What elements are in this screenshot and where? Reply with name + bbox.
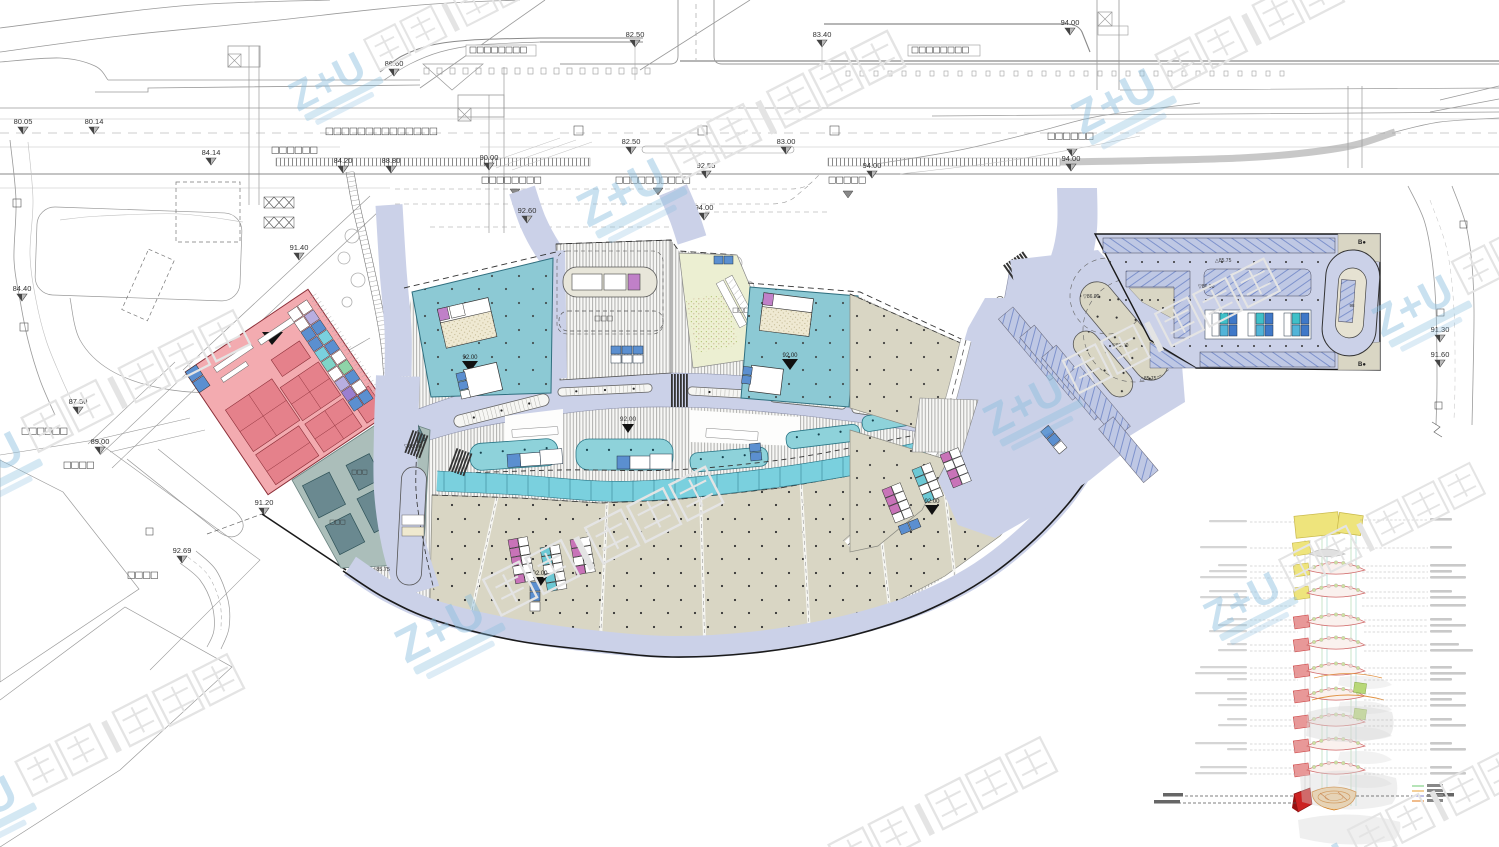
svg-text:92.00: 92.00	[924, 499, 940, 505]
svg-text:88.80: 88.80	[382, 156, 401, 165]
svg-text:92.00: 92.00	[462, 355, 478, 361]
svg-text:△85.75: △85.75	[1140, 376, 1157, 382]
svg-text:84.40: 84.40	[13, 284, 32, 293]
svg-text:△85.75: △85.75	[1215, 258, 1232, 264]
svg-text:B●: B●	[1358, 240, 1366, 246]
svg-text:84.20: 84.20	[334, 156, 353, 165]
svg-text:84.14: 84.14	[202, 148, 221, 157]
svg-text:92.00: 92.00	[782, 353, 798, 359]
svg-text:80.14: 80.14	[85, 117, 104, 126]
svg-text:89.00: 89.00	[91, 437, 110, 446]
svg-text:83.00: 83.00	[777, 137, 796, 146]
svg-text:91.60: 91.60	[1431, 350, 1450, 359]
svg-text:92.00: 92.00	[620, 416, 637, 423]
svg-text:82.50: 82.50	[622, 137, 641, 146]
svg-text:90.00: 90.00	[480, 153, 499, 162]
svg-text:83.40: 83.40	[813, 30, 832, 39]
svg-text:92.69: 92.69	[173, 546, 192, 555]
svg-text:80.05: 80.05	[14, 117, 33, 126]
svg-text:▽86.00: ▽86.00	[1083, 294, 1100, 300]
svg-text:B●: B●	[1358, 362, 1366, 368]
svg-text:92.60: 92.60	[518, 206, 537, 215]
svg-text:94.00: 94.00	[1061, 18, 1080, 27]
svg-text:94.00: 94.00	[1062, 154, 1081, 163]
svg-text:98: 98	[1349, 303, 1355, 308]
svg-text:91.20: 91.20	[255, 498, 274, 507]
svg-text:82.50: 82.50	[626, 30, 645, 39]
svg-text:91.40: 91.40	[290, 243, 309, 252]
svg-text:94.00: 94.00	[863, 161, 882, 170]
svg-text:▽88.00: ▽88.00	[404, 444, 422, 450]
